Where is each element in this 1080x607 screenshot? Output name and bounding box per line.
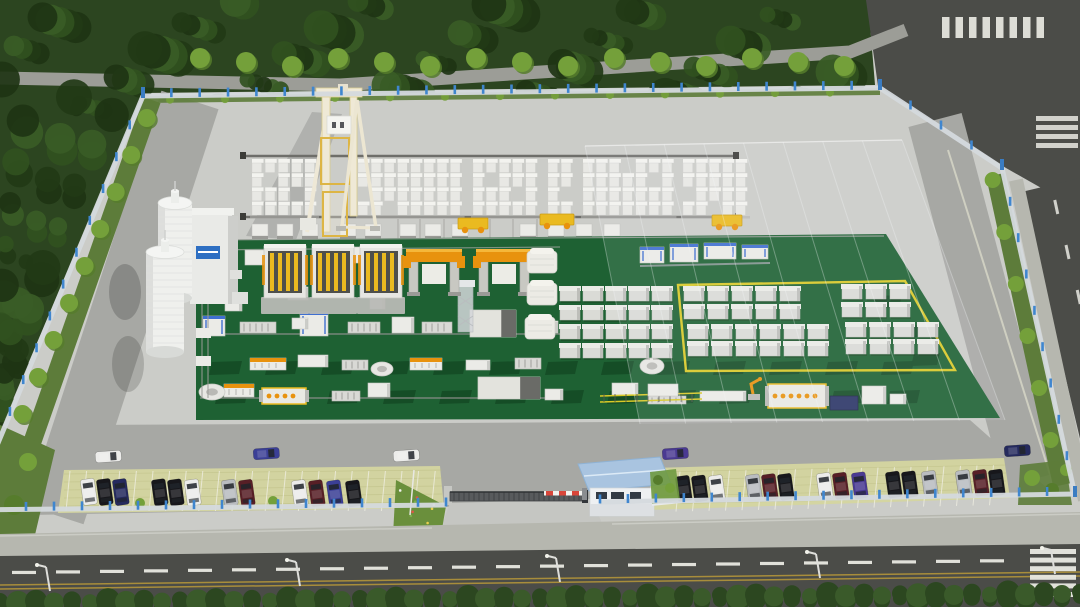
canopy-tree xyxy=(172,12,192,32)
tent-cap xyxy=(530,248,554,254)
machine-shade xyxy=(325,356,328,367)
yard-machine xyxy=(425,224,441,236)
fence-post xyxy=(737,82,740,91)
roller-conveyor xyxy=(240,322,276,333)
fence-post xyxy=(624,83,627,92)
machine-body xyxy=(368,383,390,397)
block-shade xyxy=(509,191,511,201)
cluster-shadow xyxy=(356,216,465,219)
gantry-beam-top xyxy=(476,249,532,252)
fence-post xyxy=(109,501,112,510)
fence-post xyxy=(850,490,853,499)
fence-post xyxy=(906,489,909,498)
stack-shade xyxy=(577,345,580,358)
car-roof xyxy=(991,479,1002,488)
block-shade xyxy=(262,163,264,173)
car-windshield xyxy=(268,449,275,457)
block-shade xyxy=(381,191,383,201)
fence-post xyxy=(680,83,683,92)
fence-post xyxy=(53,502,56,511)
fence-post xyxy=(305,499,308,508)
floor-pit xyxy=(439,390,472,404)
car-roof xyxy=(904,481,915,490)
roadside-tree xyxy=(282,56,302,76)
moving-car xyxy=(662,447,689,460)
stack-shadow xyxy=(584,358,604,360)
machine-shade xyxy=(305,319,308,329)
flower xyxy=(426,522,429,525)
car-roof xyxy=(294,489,305,498)
hedge-bush xyxy=(873,587,891,605)
lane-dash xyxy=(56,570,80,573)
block-shade xyxy=(535,177,537,187)
cabin-window xyxy=(332,122,336,128)
lane-dash xyxy=(716,562,740,565)
fence-corner-post xyxy=(1073,486,1077,497)
mold-column xyxy=(334,253,338,291)
canopy-tree xyxy=(45,123,76,154)
canopy-tree xyxy=(716,26,746,56)
fence-post xyxy=(425,85,428,94)
gantry-beam xyxy=(476,251,532,262)
block-shade xyxy=(483,191,485,201)
hedge-bush xyxy=(423,588,441,606)
fence-post xyxy=(25,502,28,511)
canopy-tree xyxy=(56,79,92,115)
block-shade xyxy=(447,206,449,216)
transfer-cart xyxy=(540,214,574,225)
car-roof xyxy=(780,483,791,492)
mold-column xyxy=(326,253,330,291)
block-shade xyxy=(262,177,264,187)
casting-top xyxy=(264,244,306,248)
zebra-stripe xyxy=(942,17,950,38)
fence-post xyxy=(1066,451,1069,460)
barrier-stripe xyxy=(572,491,579,496)
block-shade xyxy=(288,206,290,216)
machine-endcap xyxy=(259,390,263,402)
car-roof xyxy=(666,450,675,458)
fence-post xyxy=(454,85,457,94)
car-roof xyxy=(257,450,266,458)
fence-post xyxy=(227,88,230,97)
fence-post xyxy=(35,343,38,352)
curing-tent xyxy=(525,317,555,339)
stack-shadow xyxy=(584,339,604,341)
fence-corner-post xyxy=(878,79,882,90)
block-shade xyxy=(407,177,409,187)
fence-post xyxy=(878,490,881,499)
car-windshield xyxy=(677,449,684,457)
block-shade xyxy=(381,206,383,216)
block-shade xyxy=(301,177,303,187)
fence-corner-post xyxy=(1000,159,1004,170)
turntable-hub xyxy=(377,366,387,372)
car-roof xyxy=(348,490,359,499)
fence-post xyxy=(510,85,513,94)
canopy-tree xyxy=(14,294,44,324)
crosswalk-stripe xyxy=(1030,575,1076,580)
fence-post xyxy=(1018,487,1021,496)
silo-shade xyxy=(146,252,153,352)
hedge-bush xyxy=(172,591,188,607)
stack-shade xyxy=(600,326,603,339)
east-fence-tree xyxy=(1008,276,1024,292)
block-shade xyxy=(407,163,409,173)
mold-column xyxy=(342,253,346,291)
fence-post xyxy=(970,141,973,150)
flower xyxy=(431,507,434,510)
machine-dark-side xyxy=(520,377,540,399)
zebra-stripe xyxy=(1036,134,1078,139)
stack-shade xyxy=(577,307,580,320)
block-shade xyxy=(394,163,396,173)
block-shade xyxy=(434,206,436,216)
crane-cabin xyxy=(327,116,351,134)
casting-platform xyxy=(261,297,309,314)
east-fence-tree xyxy=(996,224,1012,240)
machine-dark-side xyxy=(501,310,516,337)
block-shade xyxy=(509,163,511,173)
fence-post xyxy=(81,501,84,510)
fence-post xyxy=(709,82,712,91)
fence-post xyxy=(1009,197,1012,206)
car-roof xyxy=(397,452,406,460)
fence-post xyxy=(137,501,140,510)
machine-shade xyxy=(487,361,490,370)
roadside-tree xyxy=(742,48,762,68)
car-windshield xyxy=(408,451,415,459)
hedge-bush xyxy=(982,587,998,603)
block-shade xyxy=(275,206,277,216)
fence-post xyxy=(482,85,485,94)
fence-post xyxy=(1041,342,1044,351)
canopy-tree xyxy=(28,2,58,32)
fence-post xyxy=(88,216,91,225)
hedge-bush xyxy=(835,585,857,607)
stack-shade xyxy=(600,345,603,358)
lane-dash xyxy=(540,565,564,568)
block-shade xyxy=(535,163,537,173)
rail-bumper xyxy=(240,213,246,220)
fence-post xyxy=(389,498,392,507)
lane-dash xyxy=(980,559,1004,562)
lane-dash xyxy=(100,570,124,573)
canopy-tree xyxy=(448,20,473,45)
fence-post xyxy=(1046,487,1049,496)
fence-post xyxy=(909,101,912,110)
zebra-stripe xyxy=(996,17,1004,38)
fence-post xyxy=(170,88,173,97)
block-shade xyxy=(262,206,264,216)
machine-shade xyxy=(555,322,558,333)
machine-shade xyxy=(560,390,563,400)
street-lamp-head xyxy=(545,554,549,558)
canopy-tree xyxy=(35,167,60,192)
orange-roller xyxy=(267,394,272,399)
lane-dash xyxy=(672,563,696,566)
fence-post xyxy=(652,83,655,92)
rail-bumper xyxy=(240,152,246,159)
moving-car xyxy=(393,449,420,462)
roadside-tree xyxy=(788,52,808,72)
gantry-beam-top xyxy=(406,249,462,252)
block-shade xyxy=(558,163,560,173)
building-roof xyxy=(188,208,234,215)
block-shade xyxy=(496,163,498,173)
fence-post xyxy=(22,375,25,384)
car-roof xyxy=(99,453,108,461)
car-roof xyxy=(854,482,865,491)
stack-shadow xyxy=(561,301,581,303)
block-shade xyxy=(407,206,409,216)
fence-post xyxy=(738,492,741,501)
block-shade xyxy=(288,163,290,173)
orange-roller xyxy=(283,394,288,399)
block-shade xyxy=(571,177,573,187)
fence-post xyxy=(567,84,570,93)
crane-counterweight xyxy=(300,218,316,230)
block-shade xyxy=(381,163,383,173)
hedge-bush xyxy=(603,587,621,605)
casting-platform xyxy=(309,297,357,314)
block-shade xyxy=(275,191,277,201)
yard-machine xyxy=(252,224,268,236)
block-shade xyxy=(288,191,290,201)
car-roof xyxy=(748,484,759,493)
casting-platform xyxy=(357,297,405,314)
block-shade xyxy=(447,191,449,201)
hedge-bush xyxy=(1015,583,1037,605)
casting-top xyxy=(312,244,354,248)
machine-orange-top xyxy=(410,358,442,362)
hedge-bush xyxy=(712,587,728,603)
car-roof xyxy=(888,481,899,490)
east-fence-tree xyxy=(985,172,1001,188)
curing-tent xyxy=(527,251,557,273)
car-roof xyxy=(924,480,935,489)
hedge-bush xyxy=(513,590,531,607)
car-roof xyxy=(329,490,340,499)
machine-body xyxy=(466,360,490,370)
lane-dash xyxy=(144,569,168,572)
fence-post xyxy=(277,499,280,508)
stack-shade xyxy=(600,288,603,301)
fence-post xyxy=(655,494,658,503)
car-roof xyxy=(83,488,94,497)
canopy-tree xyxy=(26,211,46,231)
west-fence-tree xyxy=(107,183,125,201)
fence-corner-post xyxy=(141,87,145,98)
side-post xyxy=(305,255,308,285)
hedge-bush xyxy=(565,585,587,607)
lane-dash xyxy=(188,569,212,572)
zebra-stripe xyxy=(983,17,991,38)
side-post xyxy=(262,255,265,285)
block-shade xyxy=(571,163,573,173)
mold-column xyxy=(294,253,298,291)
car-roof xyxy=(694,485,705,494)
gantry-cab xyxy=(473,256,481,268)
block-shade xyxy=(434,163,436,173)
lane-dash xyxy=(320,567,344,570)
fence-post xyxy=(49,311,52,320)
west-fence-tree xyxy=(122,146,140,164)
fence-post xyxy=(165,500,168,509)
block-shade xyxy=(460,191,462,201)
floor-pit xyxy=(545,361,578,375)
mold-column xyxy=(278,253,282,291)
cart-wheel xyxy=(564,223,570,229)
lane-dash xyxy=(232,568,256,571)
transfer-cart xyxy=(458,218,488,229)
hedge-bush xyxy=(892,585,908,601)
mold-column xyxy=(286,253,290,291)
stack-shadow xyxy=(607,358,627,360)
gantry-cab xyxy=(457,256,465,268)
block-shade xyxy=(496,191,498,201)
fence-post xyxy=(9,407,12,416)
block-shade xyxy=(420,163,422,173)
fence-post xyxy=(283,87,286,96)
crane-foot xyxy=(336,226,346,231)
fence-post xyxy=(822,491,825,500)
block-shade xyxy=(381,177,383,187)
fence-post xyxy=(962,488,965,497)
canopy-tree xyxy=(77,130,106,159)
crosswalk-stripe xyxy=(1030,549,1076,554)
lane-dash xyxy=(628,563,652,566)
west-fence-tree xyxy=(138,109,156,127)
block-shade xyxy=(593,206,595,216)
gantry-cargo xyxy=(492,264,516,284)
fence-post xyxy=(539,84,542,93)
west-fence-tree xyxy=(91,220,109,238)
fence-post xyxy=(62,280,65,289)
block-shade xyxy=(522,177,524,187)
car-roof xyxy=(819,482,830,491)
fence-post xyxy=(445,498,448,507)
hedge-bush xyxy=(764,586,784,606)
fence-post xyxy=(312,87,315,96)
cart-wheel xyxy=(462,227,468,233)
stack-shadow xyxy=(561,339,581,341)
lane-dash xyxy=(584,564,608,567)
moving-car xyxy=(253,447,280,460)
gantry-cab xyxy=(403,256,411,268)
roadside-tree xyxy=(420,56,440,76)
block-shade xyxy=(509,206,511,216)
mold-column xyxy=(318,253,322,291)
block-shade xyxy=(275,163,277,173)
mold-column xyxy=(390,253,394,291)
lane-dash xyxy=(848,561,872,564)
yard-machine xyxy=(576,224,592,236)
tent-cap xyxy=(528,314,552,320)
se-bush xyxy=(1024,470,1040,486)
block-shade xyxy=(460,177,462,187)
machine-shade xyxy=(411,318,414,333)
stack-shadow xyxy=(561,358,581,360)
fence-post xyxy=(1033,306,1036,315)
gantry-foot xyxy=(477,292,490,296)
fence-post xyxy=(249,500,252,509)
lane-dash xyxy=(892,560,916,563)
fence-post xyxy=(198,88,201,97)
fence-post xyxy=(683,493,686,502)
yard-machine-base xyxy=(277,236,293,239)
roadside-tree xyxy=(604,48,624,68)
feed-machine xyxy=(196,328,211,338)
silo-base xyxy=(146,346,184,358)
west-fence-tree xyxy=(13,405,31,423)
yard-machine xyxy=(400,224,416,236)
hedge-bush xyxy=(622,590,638,606)
hedge-bush xyxy=(693,588,711,606)
tent-cap xyxy=(530,280,554,286)
canopy-tree xyxy=(25,250,60,285)
cart-wheel xyxy=(478,227,484,233)
block-shade xyxy=(483,206,485,216)
lane-dash xyxy=(408,566,432,569)
stack-shadow xyxy=(561,320,581,322)
wall-shade xyxy=(590,504,654,516)
car-windshield xyxy=(1019,446,1026,454)
barrier-stripe xyxy=(559,491,566,496)
street-lamp-head xyxy=(285,558,289,562)
gantry-beam xyxy=(406,251,462,262)
floor-pit xyxy=(209,361,242,375)
lane-dash xyxy=(12,571,36,574)
block-shade xyxy=(535,191,537,201)
car-roof xyxy=(241,489,252,498)
machine-orange-top xyxy=(250,358,286,362)
roadside-tree xyxy=(696,56,716,76)
fence-post xyxy=(361,498,364,507)
flower xyxy=(411,511,414,514)
block-shade xyxy=(483,163,485,173)
silo-shadow xyxy=(112,336,144,392)
car-roof xyxy=(154,489,165,498)
block-shade xyxy=(288,177,290,187)
orange-roller xyxy=(275,394,280,399)
east-fence-tree xyxy=(1031,380,1047,396)
hedge-bush xyxy=(1053,585,1071,603)
cart-wheel xyxy=(544,223,550,229)
fence-post xyxy=(940,121,943,130)
canopy-tree xyxy=(63,173,87,197)
fence-post xyxy=(75,248,78,257)
hedge-bush xyxy=(674,585,694,605)
machine-orange-top xyxy=(224,384,254,388)
fence-post xyxy=(1017,233,1020,242)
fence-post xyxy=(333,499,336,508)
gantry-foot xyxy=(448,292,461,296)
hoist-box xyxy=(338,84,348,91)
car-roof xyxy=(1008,447,1017,455)
curing-tent xyxy=(527,283,557,305)
block-shade xyxy=(447,177,449,187)
car-roof xyxy=(187,489,198,498)
hedge-bush xyxy=(352,590,368,606)
garden-bush xyxy=(665,483,675,493)
canopy-tree xyxy=(128,31,163,66)
stack-shadow xyxy=(584,320,604,322)
mold-column xyxy=(374,253,378,291)
guard-window xyxy=(611,492,624,499)
building-side xyxy=(228,216,238,304)
block-shade xyxy=(496,206,498,216)
